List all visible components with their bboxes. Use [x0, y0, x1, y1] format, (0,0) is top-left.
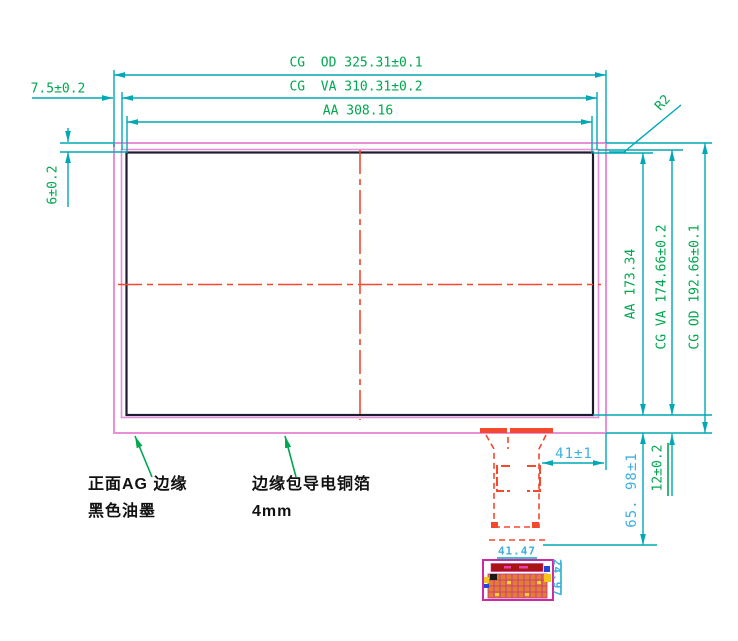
dim-connector-width: 41.47	[498, 546, 536, 557]
connector-corner-mark	[490, 574, 497, 580]
drawing-geometry	[0, 0, 738, 641]
centerlines	[118, 150, 601, 420]
dim-connector-height: 24.97	[552, 559, 563, 597]
dim-cg-va-height: CG VA 174.66±0.2	[656, 224, 669, 349]
fpc-tail	[480, 428, 553, 540]
note-front-ink-line1: 正面AG 边缘	[88, 477, 187, 493]
engineering-drawing-canvas: CG OD 325.31±0.1 CG VA 310.31±0.2 AA 308…	[0, 0, 738, 641]
connector-left-pad-yellow	[484, 577, 489, 583]
fpc-connector-detail	[483, 560, 553, 600]
note-copper-foil-line1: 边缘包导电铜箔	[252, 477, 371, 493]
dim-left-margin: 7.5±0.2	[31, 83, 86, 96]
tail-contact-bar-left	[480, 428, 507, 433]
connector-bar-mark	[519, 566, 528, 569]
dim-cg-va-width: CG VA 310.31±0.2	[289, 81, 422, 94]
dim-bottom-margin: 12±0.2	[652, 445, 665, 492]
note-copper-foil-line2: 4mm	[252, 504, 292, 520]
dim-aa-height: AA 173.34	[625, 249, 638, 319]
connector-right-pad-blue	[544, 566, 550, 572]
connector-bar-mark	[504, 566, 511, 569]
front-ink-arrow	[135, 436, 152, 477]
dim-top-margin: 6±0.2	[47, 165, 60, 204]
tail-stiffener-marks	[497, 466, 540, 491]
dim-cg-od-height: CG OD 192.66±0.1	[689, 224, 702, 349]
connector-left-pad-blue	[484, 584, 489, 588]
copper-foil-arrow	[285, 436, 296, 477]
dim-aa-width: AA 308.16	[323, 105, 393, 118]
note-front-ink-line2: 黑色油墨	[88, 504, 156, 520]
tail-corner-pad-left	[491, 522, 498, 528]
dim-cg-od-width: CG OD 325.31±0.1	[289, 57, 422, 70]
tail-contact-bar-right	[510, 428, 553, 433]
tail-corner-pad-right	[532, 522, 539, 528]
dim-tail-length: 65. 98±1	[625, 452, 639, 527]
dim-tail-offset: 41±1	[555, 447, 593, 461]
connector-top-bar	[491, 564, 543, 572]
